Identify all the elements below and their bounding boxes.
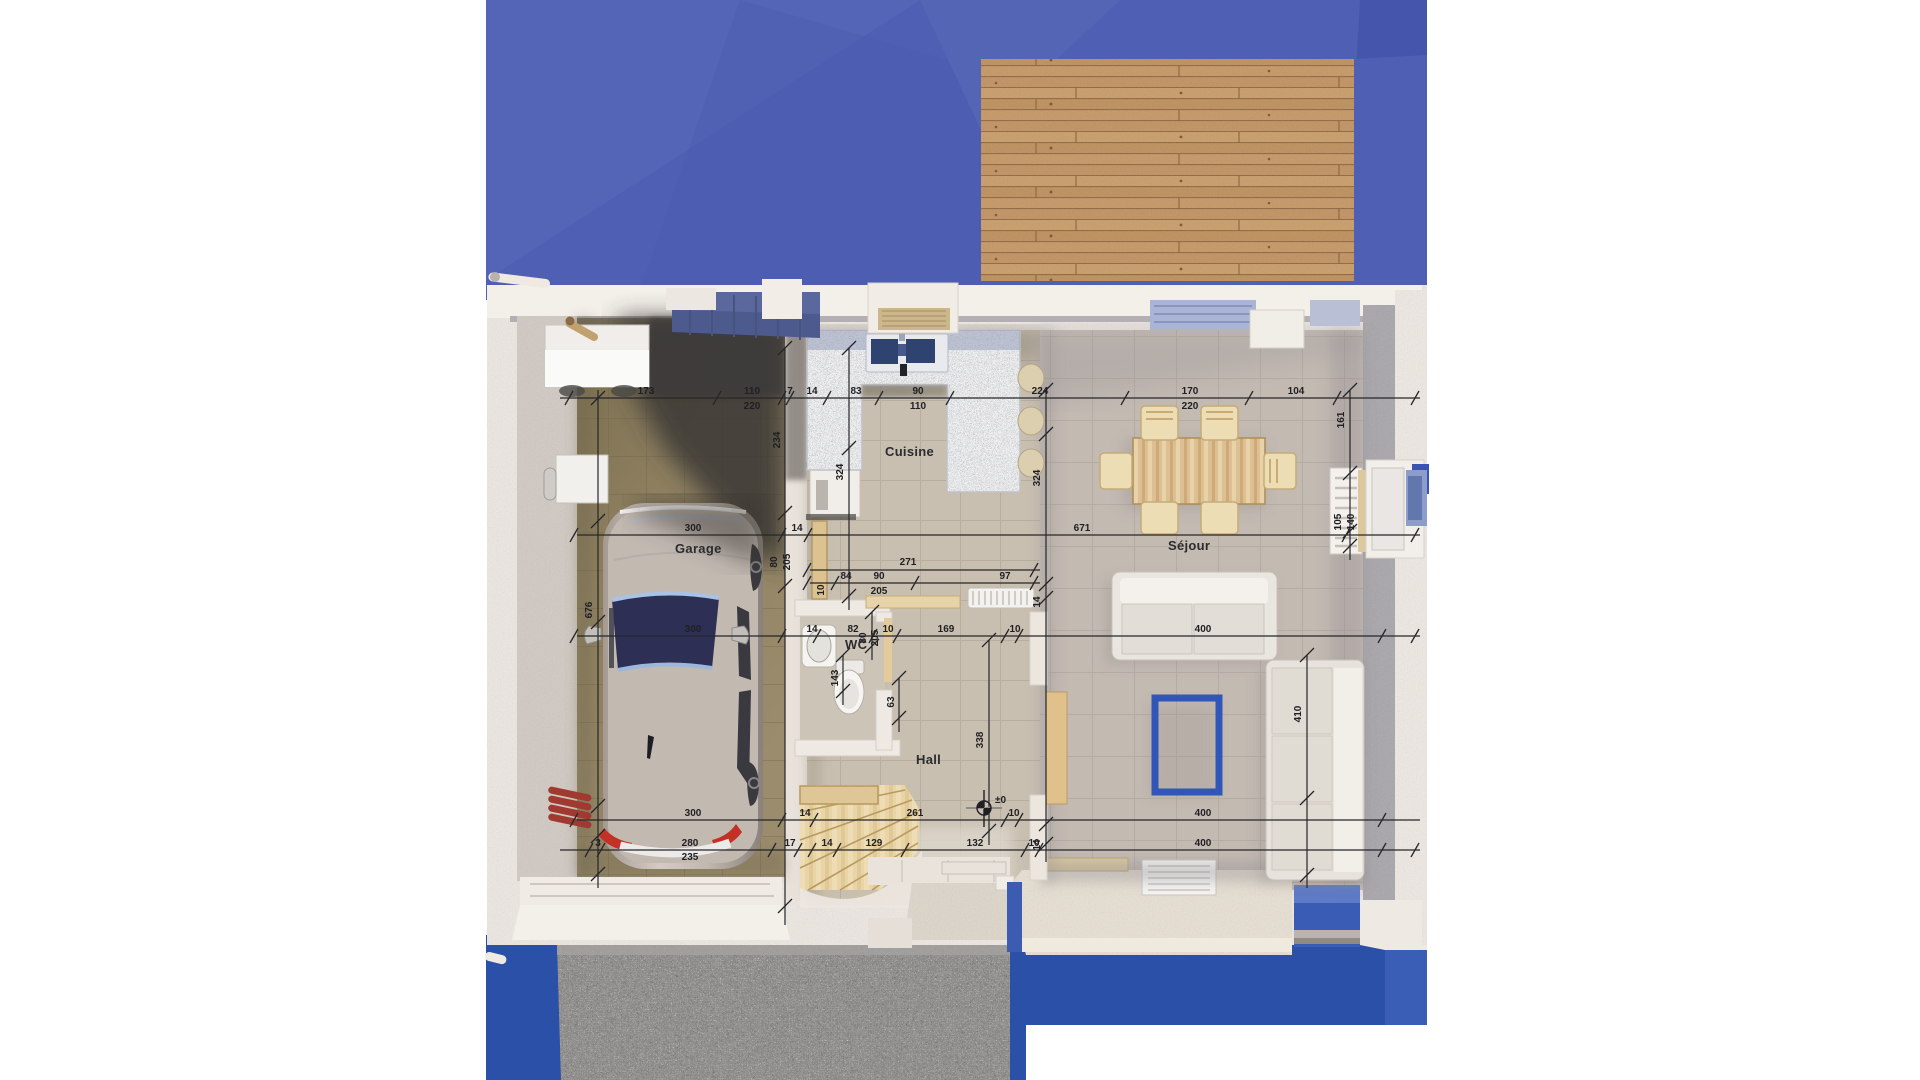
svg-text:10: 10 — [1009, 624, 1021, 635]
svg-text:271: 271 — [900, 557, 917, 568]
svg-text:Séjour: Séjour — [1168, 538, 1210, 553]
svg-text:14: 14 — [806, 624, 818, 635]
svg-text:170: 170 — [1182, 386, 1199, 397]
svg-text:169: 169 — [938, 624, 955, 635]
svg-text:205: 205 — [871, 586, 888, 597]
svg-text:10: 10 — [882, 624, 894, 635]
svg-text:10: 10 — [816, 584, 827, 596]
svg-text:83: 83 — [850, 386, 862, 397]
svg-text:400: 400 — [1195, 624, 1212, 635]
svg-text:261: 261 — [907, 808, 924, 819]
svg-text:280: 280 — [682, 838, 699, 849]
svg-text:300: 300 — [685, 624, 702, 635]
svg-text:110: 110 — [910, 401, 927, 412]
svg-text:410: 410 — [1293, 705, 1304, 722]
svg-text:84: 84 — [840, 571, 852, 582]
svg-text:90: 90 — [873, 571, 885, 582]
svg-text:Cuisine: Cuisine — [885, 444, 934, 459]
svg-text:224: 224 — [1032, 386, 1049, 397]
svg-text:±0: ±0 — [995, 795, 1006, 806]
svg-text:110: 110 — [744, 386, 761, 397]
svg-text:300: 300 — [685, 523, 702, 534]
svg-text:3: 3 — [595, 838, 601, 849]
svg-text:80: 80 — [769, 556, 780, 568]
svg-text:205: 205 — [782, 553, 793, 570]
svg-text:161: 161 — [1336, 411, 1347, 428]
svg-text:140: 140 — [1346, 513, 1357, 530]
svg-text:132: 132 — [967, 838, 984, 849]
svg-text:14: 14 — [799, 808, 811, 819]
svg-text:143: 143 — [830, 669, 841, 686]
svg-text:676: 676 — [584, 601, 595, 618]
svg-text:10: 10 — [1008, 808, 1020, 819]
svg-text:300: 300 — [685, 808, 702, 819]
svg-text:14: 14 — [1032, 839, 1043, 851]
svg-text:17: 17 — [784, 838, 796, 849]
svg-text:WC: WC — [845, 637, 868, 652]
svg-text:220: 220 — [1182, 401, 1199, 412]
svg-text:97: 97 — [999, 571, 1011, 582]
svg-text:173: 173 — [638, 386, 655, 397]
svg-text:90: 90 — [912, 386, 924, 397]
svg-text:63: 63 — [886, 696, 897, 708]
svg-text:235: 235 — [682, 852, 699, 863]
svg-text:234: 234 — [772, 431, 783, 448]
svg-text:220: 220 — [744, 401, 761, 412]
svg-text:105: 105 — [1333, 513, 1344, 530]
svg-text:14: 14 — [821, 838, 833, 849]
svg-text:14: 14 — [1032, 596, 1043, 608]
svg-text:14: 14 — [806, 386, 818, 397]
svg-text:129: 129 — [866, 838, 883, 849]
svg-text:324: 324 — [1032, 469, 1043, 486]
svg-text:7: 7 — [787, 386, 793, 397]
svg-text:Hall: Hall — [916, 752, 941, 767]
svg-text:324: 324 — [835, 463, 846, 480]
svg-text:400: 400 — [1195, 808, 1212, 819]
svg-text:671: 671 — [1074, 523, 1091, 534]
svg-text:104: 104 — [1288, 386, 1305, 397]
svg-text:338: 338 — [975, 731, 986, 748]
svg-text:14: 14 — [791, 523, 803, 534]
svg-text:205: 205 — [870, 629, 881, 646]
svg-text:400: 400 — [1195, 838, 1212, 849]
svg-text:Garage: Garage — [675, 541, 722, 556]
